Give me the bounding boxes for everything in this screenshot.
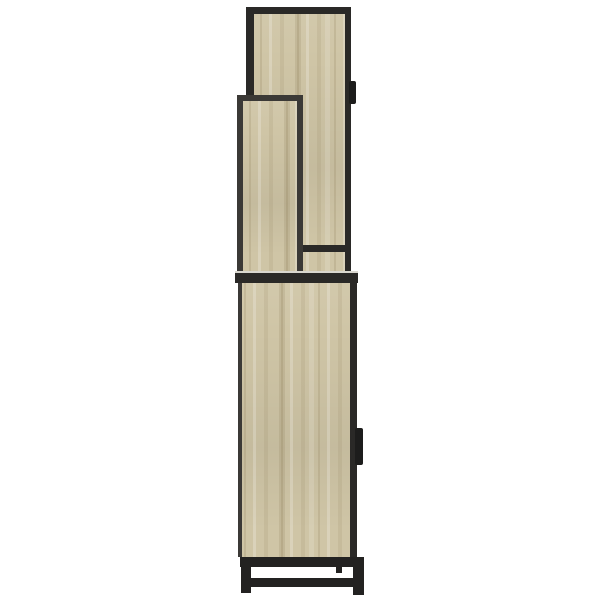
cabinet-top-band [235, 273, 358, 283]
cabinet-left-edge [238, 283, 242, 557]
base-top-bar [240, 557, 364, 567]
cabinet-door-handle [355, 428, 363, 465]
front-panel-wood [243, 101, 297, 272]
cabinet-body [238, 283, 357, 557]
product-photo [0, 0, 600, 600]
base-stretcher-bar [241, 578, 364, 587]
base-bolt [336, 567, 342, 573]
back-panel-handle [349, 81, 356, 104]
front-frame-panel [237, 95, 303, 272]
cabinet-right-band [350, 283, 357, 557]
